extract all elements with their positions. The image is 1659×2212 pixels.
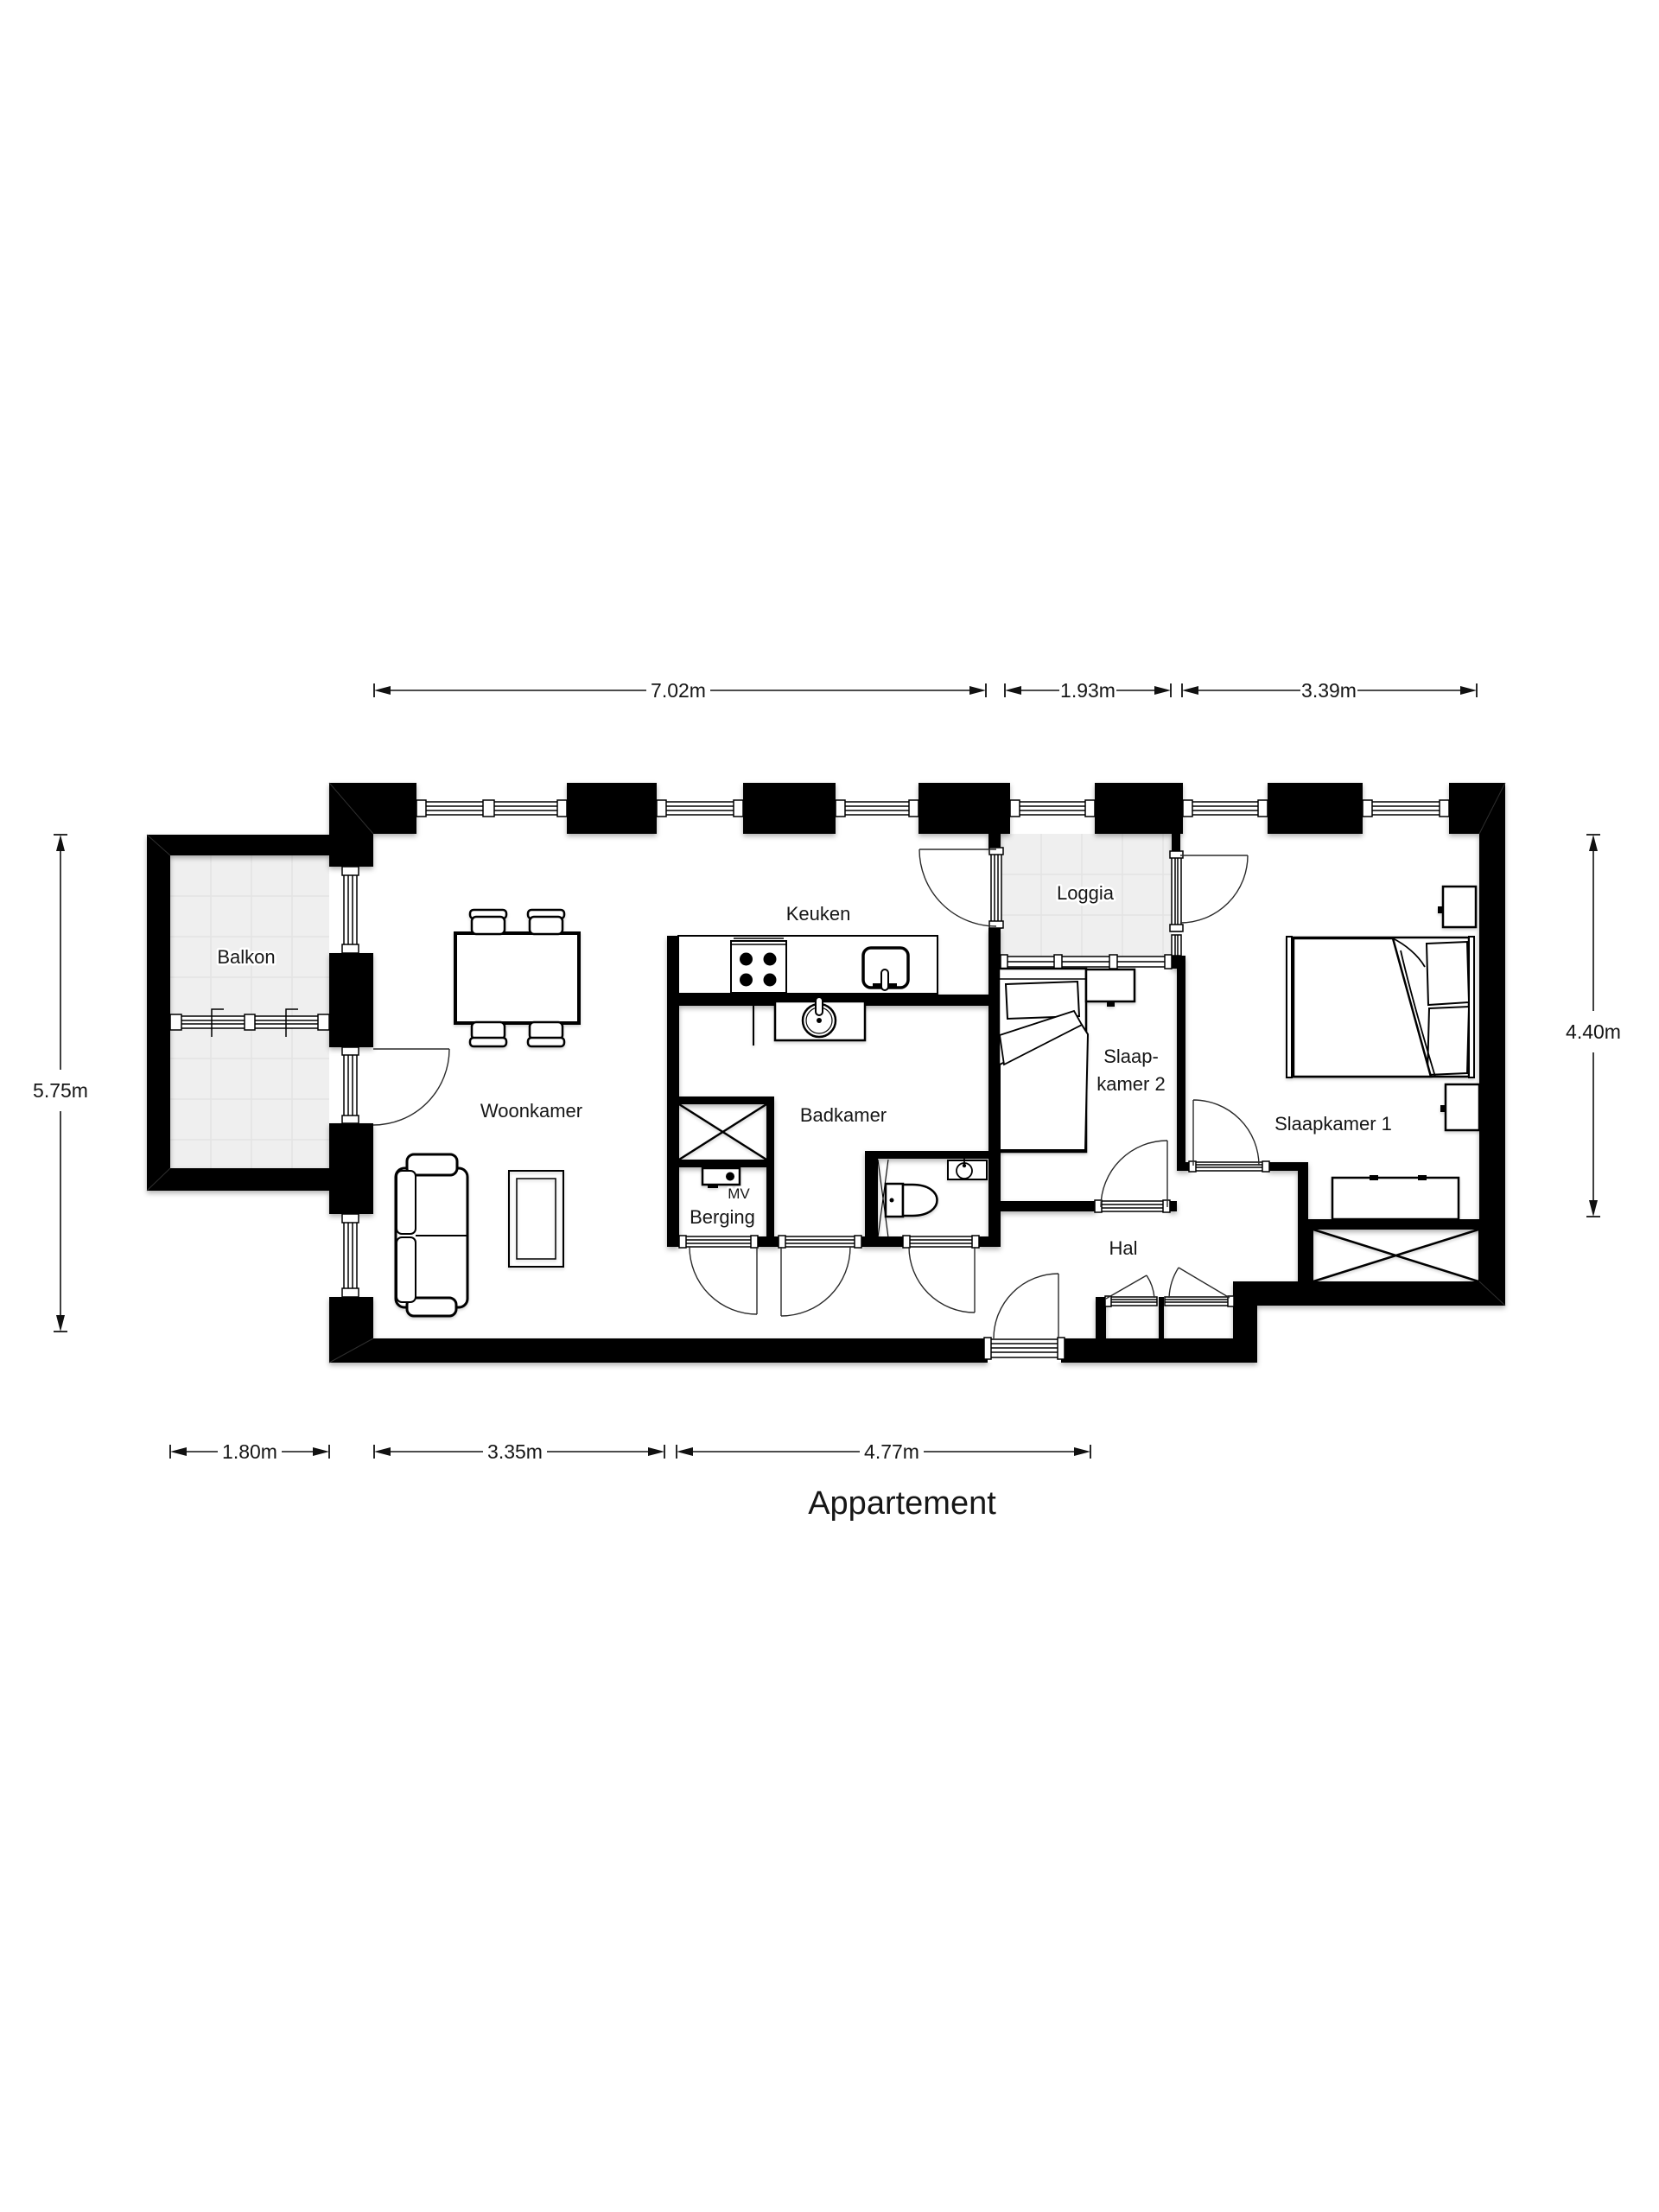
svg-text:Badkamer: Badkamer (800, 1104, 887, 1126)
svg-text:Loggia: Loggia (1057, 882, 1115, 904)
svg-text:1.93m: 1.93m (1060, 679, 1116, 702)
svg-text:3.35m: 3.35m (487, 1440, 543, 1463)
svg-text:Slaap-: Slaap- (1103, 1046, 1159, 1067)
svg-text:3.39m: 3.39m (1301, 679, 1357, 702)
svg-text:kamer 2: kamer 2 (1096, 1073, 1165, 1095)
svg-text:Balkon: Balkon (217, 946, 275, 968)
svg-text:Slaapkamer 1: Slaapkamer 1 (1274, 1113, 1392, 1135)
svg-text:Keuken: Keuken (786, 903, 851, 925)
svg-text:7.02m: 7.02m (651, 679, 706, 702)
svg-text:MV: MV (728, 1185, 750, 1202)
svg-text:1.80m: 1.80m (222, 1440, 277, 1463)
svg-text:4.77m: 4.77m (864, 1440, 919, 1463)
svg-text:Berging: Berging (690, 1206, 755, 1228)
svg-text:Hal: Hal (1109, 1237, 1137, 1259)
svg-text:4.40m: 4.40m (1566, 1020, 1621, 1043)
svg-text:Appartement: Appartement (808, 1485, 996, 1522)
svg-text:Woonkamer: Woonkamer (480, 1100, 582, 1122)
svg-text:5.75m: 5.75m (33, 1079, 88, 1102)
